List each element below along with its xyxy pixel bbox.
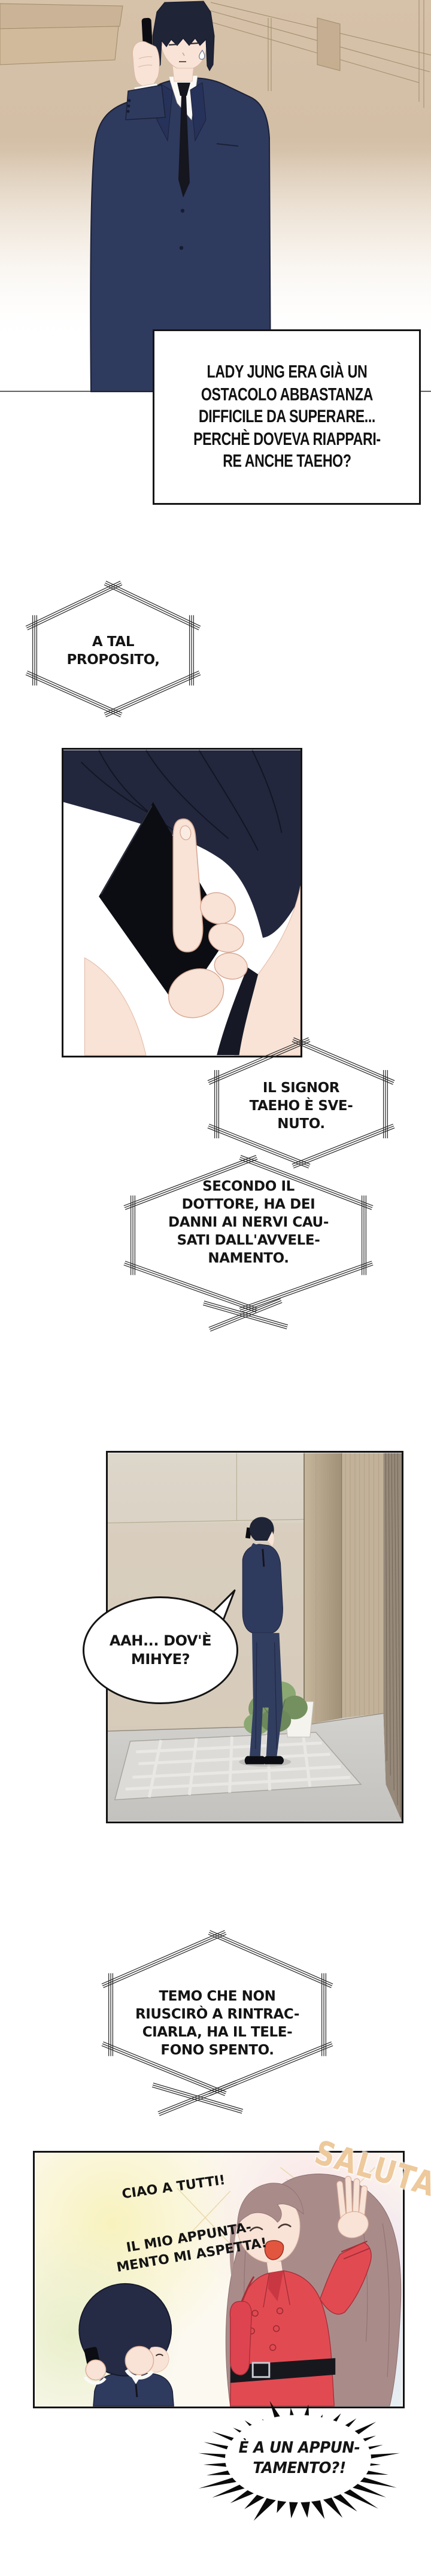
bubble-text-temo: TEMO CHE NON RIUSCIRÒ A RINTRAC- CIARLA,… [133,1988,301,2060]
webtoon-page: LADY JUNG ERA GIÀ UN OSTACOLO ABBASTANZA… [0,0,431,2576]
bubble-text-svenuto: IL SIGNOR TAEHO È SVE- NUTO. [226,1080,376,1134]
hand [132,41,159,86]
red-bag [230,2301,251,2375]
bubble-text-proposito: A TAL PROPOSITO, [41,634,185,669]
narration-caption-box: LADY JUNG ERA GIÀ UN OSTACOLO ABBASTANZA… [153,329,421,505]
burst-text-appuntamento: È A UN APPUN- TAMENTO?! [226,2438,374,2479]
narration-caption-text: LADY JUNG ERA GIÀ UN OSTACOLO ABBASTANZA… [193,361,381,472]
bubble-text-dottore: SECONDO IL DOTTORE, HA DEI DANNI AI NERV… [159,1178,338,1267]
woman-figure [226,2174,400,2407]
bubble-text-dove-mihye: AAH... DOV'È MIHYE? [92,1632,229,1669]
panel-closeup-phone [62,748,302,1057]
closeup-illustration [63,750,301,1056]
greeting-illustration [35,2153,403,2407]
panel-greeting-woman [33,2151,405,2408]
